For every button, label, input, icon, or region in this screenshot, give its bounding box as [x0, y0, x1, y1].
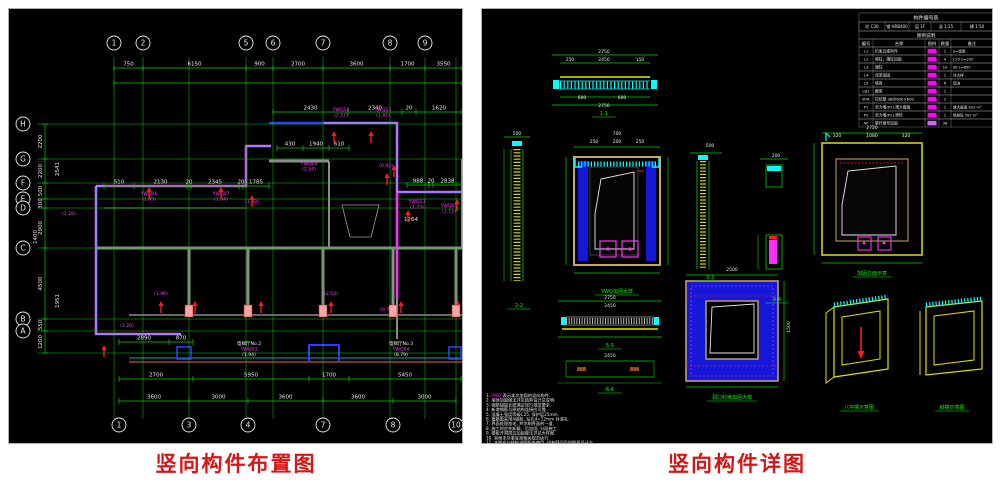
screenshot-stage: 12567891347810HGFEDCBA750615090027003600…: [0, 0, 1000, 480]
legend-row-qty: 10: [943, 65, 948, 70]
red-arrow-icon: [249, 195, 254, 200]
legend-row-code: L2: [864, 57, 869, 62]
legend-info-cell: 砼 C30: [865, 23, 879, 29]
dim-value: 1264: [404, 217, 418, 223]
detail-dim-value: 250: [636, 139, 645, 145]
detail-caption: 洞口封堵加固大样: [712, 394, 752, 401]
dim-value: 2700: [291, 62, 305, 68]
note-line: 11. 本图应与结构说明配合使用, 如有疑问及时联系设计方.: [486, 439, 594, 443]
detail-dim-value: 2450: [604, 353, 616, 359]
wall-pier: [244, 305, 252, 317]
legend-row-name: 拉结筋 d8@600×600: [875, 97, 914, 102]
detail-caption: 4-4: [773, 297, 781, 303]
legend-row-swatch: [928, 81, 937, 86]
detail-dim-value: 500: [706, 143, 715, 149]
plan-component-label: YWQ11: [374, 107, 392, 113]
axis-bubble-label: F: [21, 179, 25, 188]
detail-caption: 6-6: [606, 387, 614, 393]
axis-bubble-label: 7: [321, 421, 326, 430]
detail-caption: 斜撑示意图: [939, 404, 964, 411]
dim-value: 988: [413, 179, 424, 185]
legend-header-cell: 数量: [941, 40, 949, 47]
plan-component-label: (2.54): [302, 167, 316, 173]
legend-row-name: 约束边缘构件: [875, 49, 898, 54]
legend-row-name: 暗柱、端柱加固: [875, 57, 902, 62]
detail-dim-value: 200: [613, 139, 622, 145]
dim-value: 430: [285, 142, 296, 148]
dim-value: 5950: [244, 373, 258, 379]
red-arrow-icon: [331, 131, 336, 136]
dim-value: 20: [428, 179, 435, 185]
dim-value: 900: [254, 62, 265, 68]
axis-bubble-label: 1: [117, 421, 122, 430]
axis-bubble-label: 3: [187, 421, 192, 430]
plan-component-label: (2.15): [442, 209, 456, 215]
detail-dim-value: 700: [613, 131, 622, 137]
legend-row-code: L4: [864, 73, 869, 78]
axis-bubble-label: 6: [271, 39, 276, 48]
dim-value: 550: [38, 319, 44, 330]
detail-dim-value: 500: [513, 131, 522, 137]
axis-bubble-label: A: [20, 327, 26, 336]
legend-row-qty: 4: [944, 57, 947, 62]
red-arrow-icon: [146, 187, 151, 192]
detail-dim-value: 250: [590, 139, 599, 145]
plan-component-label: 电梯厅No.3: [389, 340, 413, 347]
dim-value: 750: [123, 62, 134, 68]
legend-row-qty: 1: [944, 113, 947, 118]
detail-opening-infill: [686, 275, 784, 387]
plan-component-label: (2.54): [324, 291, 338, 297]
red-arrow-icon: [384, 173, 389, 178]
axis-bubble-label: H: [20, 120, 26, 129]
red-arrow-icon: [158, 301, 163, 306]
detail-center-elevation: [566, 147, 668, 273]
axis-bubble-label: 4: [246, 421, 251, 430]
plan-component-label: 电梯厅No.2: [237, 340, 261, 347]
dim-value: 300: [38, 198, 44, 209]
dim-value: 500: [38, 185, 44, 196]
legend-row-swatch: [928, 105, 937, 110]
legend-row-name: 碳纤维布加固: [875, 121, 898, 126]
plan-component-label: (1.28): [62, 211, 76, 217]
detail-dim-value: 150: [636, 57, 645, 63]
plan-component-label: YWQ09: [300, 161, 318, 167]
legend-row-qty: 6: [944, 81, 947, 86]
legend-row-name: 圈梁: [875, 89, 883, 94]
dim-value: 4500: [38, 276, 44, 290]
legend-row-code: L1: [864, 49, 869, 54]
legend-row-code: BTA: [862, 97, 870, 102]
detail-axon-brace: [826, 297, 888, 383]
detail-caption: YWQ加固大样: [600, 288, 633, 295]
red-arrow-icon: [101, 345, 106, 350]
legend-info-cell: 竖 1:25: [939, 23, 954, 29]
wall-pier: [389, 305, 397, 317]
detail-stacked-sections: [758, 159, 788, 269]
dim-value: 3600: [279, 395, 293, 401]
detail-dim-value: 2720: [866, 125, 878, 131]
left-drawing-caption: 竖向构件布置图: [156, 448, 317, 478]
dim-value: 3000: [212, 395, 226, 401]
axis-bubble-label: D: [20, 204, 26, 213]
axis-bubble-label: 10: [451, 421, 461, 430]
dim-value: 3600: [350, 62, 364, 68]
detail-dim-value: 2750: [598, 49, 610, 55]
dim-value: 20: [238, 180, 245, 186]
legend-header-cell: 图例: [928, 40, 936, 47]
axis-bubble-label: 7: [321, 39, 326, 48]
detail-dim-value: 1080: [866, 133, 878, 139]
legend-row-name: 剪力墙(P1)·增大截面: [875, 105, 911, 110]
detail-dim-value: 2750: [598, 103, 610, 109]
legend-row-qty: 2: [944, 97, 947, 102]
axis-bubble-label: B: [20, 315, 25, 324]
detail-caption: 3-3: [706, 275, 714, 281]
legend-row-code: LB1: [862, 89, 870, 94]
dim-value: 3000: [418, 395, 432, 401]
dim-value: 2430: [304, 106, 318, 112]
legend-row-code: AP: [864, 121, 870, 126]
dim-value: 2838: [441, 179, 455, 185]
dim-value: 1700: [322, 373, 336, 379]
legend-row-name: 墙身: [875, 81, 883, 86]
dim-value: 3600: [351, 395, 365, 401]
legend-row-swatch: [928, 97, 937, 102]
legend-row-swatch: [928, 73, 937, 78]
red-arrow-icon: [218, 187, 223, 192]
dim-value: 2541: [55, 162, 61, 176]
axis-bubble-label: C: [20, 244, 25, 253]
detail-right-elevation: [814, 133, 922, 263]
legend-row-swatch: [928, 89, 937, 94]
dim-value: 1200: [38, 335, 44, 349]
dim-value: 6150: [188, 62, 202, 68]
dim-value: 1620: [432, 106, 446, 112]
legend-row-qty: 1: [944, 49, 947, 54]
right-cad-drawing-panel: 构件编号表砼 C30钢 HRB400层 1F竖 1:25横 1:50图例说明编号…: [481, 8, 993, 444]
detail-dim-value: 200: [772, 153, 781, 159]
detail-dim-value: 600: [618, 95, 627, 101]
legend-title: 构件编号表: [913, 14, 938, 21]
dim-value: 20: [406, 106, 413, 112]
legend-row-qty: 1: [944, 105, 947, 110]
dim-value: 2200: [38, 134, 44, 148]
axis-bubble-label: 8: [388, 39, 393, 48]
legend-row-name: 端柱: [875, 65, 883, 70]
generated-plan-annotations: 12567891347810HGFEDCBA750615090027003600…: [16, 36, 462, 432]
red-arrow-icon: [328, 301, 333, 306]
axis-bubble-label: 9: [423, 39, 428, 48]
legend-header-cell: 名称: [895, 40, 903, 47]
legend-row-qty: 1: [944, 89, 947, 94]
detail-dim-value: 320: [902, 133, 911, 139]
detail-dim-value: 2750: [604, 295, 616, 301]
detail-caption: 5-5: [606, 343, 614, 349]
detail-dim-value: 250: [566, 57, 575, 63]
plan-component-label: (1.81): [376, 113, 390, 119]
red-arrow-icon: [368, 131, 373, 136]
legend-row-swatch: [928, 121, 937, 126]
legend-row-name: 连梁加固: [875, 73, 890, 78]
legend-row-code: L3: [864, 65, 869, 70]
legend-row-qty: 36: [943, 121, 948, 126]
detail-dim-value: 600: [578, 95, 587, 101]
red-arrow-icon: [405, 210, 410, 215]
legend-row-swatch: [928, 65, 937, 70]
legend-row-remark: b=墙厚: [953, 49, 966, 54]
detail-dim-value: 320: [833, 133, 842, 139]
dim-value: 1940: [309, 142, 323, 148]
detail-dim-value: 1500: [786, 321, 792, 333]
legend-info-cell: 钢 HRB400: [886, 23, 908, 29]
plan-highlight-walls: [96, 123, 462, 334]
dim-value: 870: [176, 336, 187, 342]
legend-header-cell: 编号: [862, 40, 870, 47]
legend-row-swatch: [928, 113, 937, 118]
detail-wall-section-left: [504, 137, 530, 281]
layout-plan-svg: 12567891347810HGFEDCBA750615090027003600…: [9, 9, 462, 443]
right-drawing-caption: 竖向构件详图: [668, 448, 806, 478]
plan-component-label: (1.96): [154, 291, 168, 297]
plan-component-label: (2.57): [334, 113, 348, 119]
red-arrow-icon: [258, 301, 263, 306]
plan-component-label: (8.79): [394, 352, 408, 358]
dim-value: 2890: [137, 336, 151, 342]
axis-bubble-label: 1: [112, 39, 117, 48]
dim-value: 2345: [208, 180, 222, 186]
detail-caption: 2-2: [515, 303, 523, 309]
dim-value: 1400: [33, 230, 39, 244]
plan-component-label: YWQ03: [240, 347, 258, 353]
axis-bubble-label: 5: [244, 39, 249, 48]
legend-row-remark: d8 L=600: [953, 66, 971, 70]
dim-value: 1785: [249, 180, 263, 186]
wall-pier: [452, 305, 460, 317]
plan-component-label: (0.92): [379, 163, 393, 169]
legend-header-cell: 备注: [968, 40, 977, 47]
legend-row-remark: 现浇: [953, 81, 961, 86]
plan-component-label: (1.28): [120, 323, 134, 329]
plan-component-label: YWQ10: [332, 107, 350, 113]
detail-axon-plain: [920, 299, 982, 375]
plan-component-label: (1.73): [410, 205, 424, 211]
detail-caption: 加固立面示意: [857, 270, 887, 277]
legend-row-swatch: [928, 49, 937, 54]
red-arrow-icon: [454, 199, 459, 204]
detail-caption: 1-1: [600, 111, 608, 117]
dim-value: 610: [334, 142, 345, 148]
detail-dim-value: 2450: [604, 303, 616, 309]
legend-row-remark: 详大样: [953, 73, 964, 78]
dim-value: 3600: [147, 395, 161, 401]
axis-bubble-label: G: [20, 155, 26, 164]
dim-value: 3550: [437, 62, 451, 68]
dim-value: 510: [114, 180, 125, 186]
detail-dim-value: 2450: [598, 57, 610, 63]
dim-value: 1700: [401, 62, 415, 68]
legend-info-cell: 横 1:50: [970, 23, 985, 29]
legend-row-code: P2: [864, 113, 869, 118]
legend-row-remark: 喷射砼 587 m²: [953, 113, 978, 118]
legend-row-swatch: [928, 57, 937, 62]
detail-sheet-svg: 构件编号表砼 C30钢 HRB400层 1F竖 1:25横 1:50图例说明编号…: [482, 9, 992, 443]
dim-value: 2200: [38, 164, 44, 178]
dim-value: 20: [186, 180, 193, 186]
dim-value: 2700: [149, 373, 163, 379]
red-arrow-icon: [398, 301, 403, 306]
dim-value: 5450: [398, 373, 412, 379]
plan-component-label: (1.94): [242, 352, 256, 358]
axis-bubble-label: 8: [391, 421, 396, 430]
legend-row-qty: 1: [944, 73, 947, 78]
wall-pier: [319, 305, 327, 317]
legend-subtitle: 图例说明: [917, 32, 935, 39]
legend-row-remark: 增大截面 632 m²: [953, 105, 982, 110]
plan-component-label: YWQ13: [408, 199, 426, 205]
detail-plain-section: [558, 361, 662, 383]
detail-dim-value: 2500: [726, 267, 738, 273]
legend-info-cell: 层 1F: [915, 23, 926, 29]
legend-row-code: P1: [864, 105, 869, 110]
legend-row-name: 剪力墙(P2)·喷砼: [875, 113, 903, 118]
axis-bubble-label: 2: [141, 39, 146, 48]
detail-wall-section-mid: [690, 153, 722, 269]
plan-component-label: YWQ04: [392, 347, 410, 353]
left-cad-drawing-panel: 12567891347810HGFEDCBA750615090027003600…: [8, 8, 463, 444]
legend-row-remark: C25 b=200: [953, 58, 974, 62]
legend-row-code: L5: [864, 81, 869, 86]
dim-value: 1951: [55, 294, 61, 308]
dim-value: 2130: [154, 180, 168, 186]
plan-balcony-lines: [129, 345, 462, 362]
wall-pier: [185, 305, 193, 317]
detail-caption: 八字撑示意图: [844, 404, 874, 411]
